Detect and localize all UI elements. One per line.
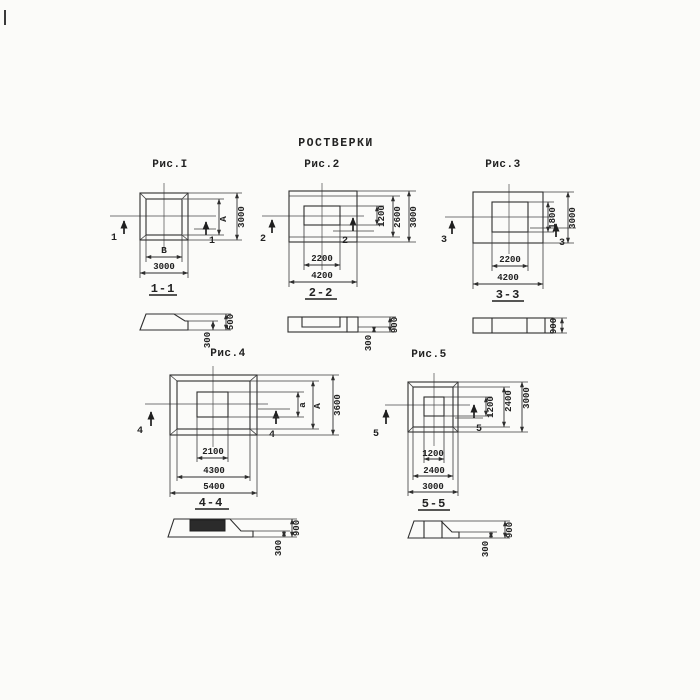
figure-4: Рис.4 4 4 а А 3600 2100 4300 5400 4-4 [137,348,343,510]
section-4-4-ext-lines [230,519,297,537]
section-4-4-dim-total-value: 900 [292,520,302,536]
section-1-1-dim-ledge-value: 300 [203,332,213,348]
section-5-5-ext-lines [441,521,510,538]
fig3-cut-label-right: 3 [559,238,565,249]
fig5-dim-mid-h-value: 2400 [504,390,514,412]
fig3-cut-label-left: 3 [441,235,447,246]
fig5-mid-outline [413,387,453,427]
sheet-title: РОСТВЕРКИ [298,137,374,150]
drawing-sheet: РОСТВЕРКИ Рис.I 1 1 А 3000 В 3000 1-1 [0,0,700,700]
section-2-2-dim-total-value: 900 [390,317,400,333]
fig4-dim-mid-w-value: 4300 [203,466,225,476]
fig3-outer-outline [473,192,543,243]
section-4-4: 900 300 [168,519,302,556]
fig1-dim-inner-w-value: В [161,245,167,256]
section-5-5-segment-lines [424,521,442,538]
section-2-2: 900 300 [288,317,400,351]
fig1-dim-outer-w-value: 3000 [153,262,175,272]
section-3-3: 900 [473,318,567,334]
fig5-dim-mid-w-value: 2400 [423,466,445,476]
section-4-4-recess [190,520,225,531]
section-1-1-ext-lines [174,314,231,330]
fig5-cut-label-right: 5 [476,424,482,435]
figure-3: Рис.3 3 3 1800 3000 2200 4200 3-3 [441,159,578,302]
fig5-dim-outer-w-value: 3000 [422,482,444,492]
fig4-dim-inner-h-value: а [297,402,308,408]
fig5-dim-outer-h-value: 3000 [522,387,532,409]
fig4-mid-outline [177,381,250,429]
fig5-chamfer-edges [408,382,458,432]
section-5-5: 900 300 [408,521,515,557]
fig4-ext-inner-h [228,392,304,417]
section-5-5-dim-ledge-value: 300 [481,541,491,557]
fig1-cut-label-left: 1 [111,233,117,244]
fig4-dim-outer-w-value: 5400 [203,482,225,492]
section-4-4-dim-ledge-value: 300 [274,540,284,556]
grillage-drawing: РОСТВЕРКИ Рис.I 1 1 А 3000 В 3000 1-1 [0,0,700,700]
fig5-dim-inner-h-value: 1200 [486,396,496,418]
section-1-1-dim-total-value: 500 [226,314,236,330]
section-1-1-profile [140,314,188,330]
fig4-cut-label-left: 4 [137,426,143,437]
fig4-dim-inner-w-value: 2100 [202,447,224,457]
section-5-5-dim-total-value: 900 [505,522,515,538]
figure-5: Рис.5 5 5 1200 2400 3000 1200 2400 3000 … [373,349,532,511]
fig2-cut-label-right: 2 [342,236,348,247]
section-3-3-dim-total-value: 900 [549,318,559,334]
figure-1-caption: Рис.I [152,159,188,171]
fig4-inner-outline [197,392,228,417]
fig2-dim-outer-w-value: 4200 [311,271,333,281]
section-2-2-dim-ledge-value: 300 [364,335,374,351]
figure-2: Рис.2 2 2 1200 2600 3000 2200 4200 2-2 [260,159,419,300]
fig5-dim-inner-w-value: 1200 [422,449,444,459]
fig4-ext-mid-h [250,381,319,429]
fig2-section-label: 2-2 [309,286,334,300]
fig4-dim-mid-h-value: А [312,403,323,409]
fig3-dim-inner-h-value: 1800 [548,207,558,229]
fig4-section-label: 4-4 [199,496,224,510]
fig4-dim-outer-h-value: 3600 [333,394,343,416]
fig1-cut-label-right: 1 [209,236,215,247]
fig2-cut-label-left: 2 [260,234,266,245]
fig3-section-label: 3-3 [496,288,521,302]
section-3-3-segment-lines [492,318,545,333]
fig5-section-label: 5-5 [422,497,447,511]
fig5-ext-mid-h [453,387,510,427]
figure-1: Рис.I 1 1 А 3000 В 3000 1-1 [110,159,247,296]
fig4-chamfer-edges [170,375,257,435]
fig4-cut-label-right: 4 [269,430,275,441]
figure-5-caption: Рис.5 [411,349,447,361]
fig3-ext-inner-w [492,232,528,271]
fig3-dim-outer-w-value: 4200 [497,273,519,283]
section-3-3-profile [473,318,553,333]
fig2-outer-outline [289,191,357,242]
fig5-outer-outline [408,382,458,432]
fig1-ext-outer-h [188,193,242,240]
fig1-dim-inner-h-value: А [218,216,229,222]
fig1-dim-outer-h-value: 3000 [237,206,247,228]
scan-artifact [4,10,6,25]
fig3-dim-inner-w-value: 2200 [499,255,521,265]
fig2-dim-inner-h-value: 1200 [377,205,387,227]
fig2-dim-outer-h-value: 3000 [409,206,419,228]
fig3-dim-outer-h-value: 3000 [568,207,578,229]
figure-3-caption: Рис.3 [485,159,521,171]
section-5-5-profile [408,521,459,538]
fig4-outer-outline [170,375,257,435]
section-1-1: 300 500 [140,314,236,348]
section-2-2-recess [302,317,340,327]
fig2-dim-inner-w-value: 2200 [311,254,333,264]
figure-4-caption: Рис.4 [210,348,246,360]
fig2-dim-mid-h-value: 2600 [393,206,403,228]
figure-2-caption: Рис.2 [304,159,340,171]
fig5-ext-inner-h [444,397,492,416]
fig5-cut-label-left: 5 [373,429,379,440]
fig1-section-label: 1-1 [151,282,176,296]
